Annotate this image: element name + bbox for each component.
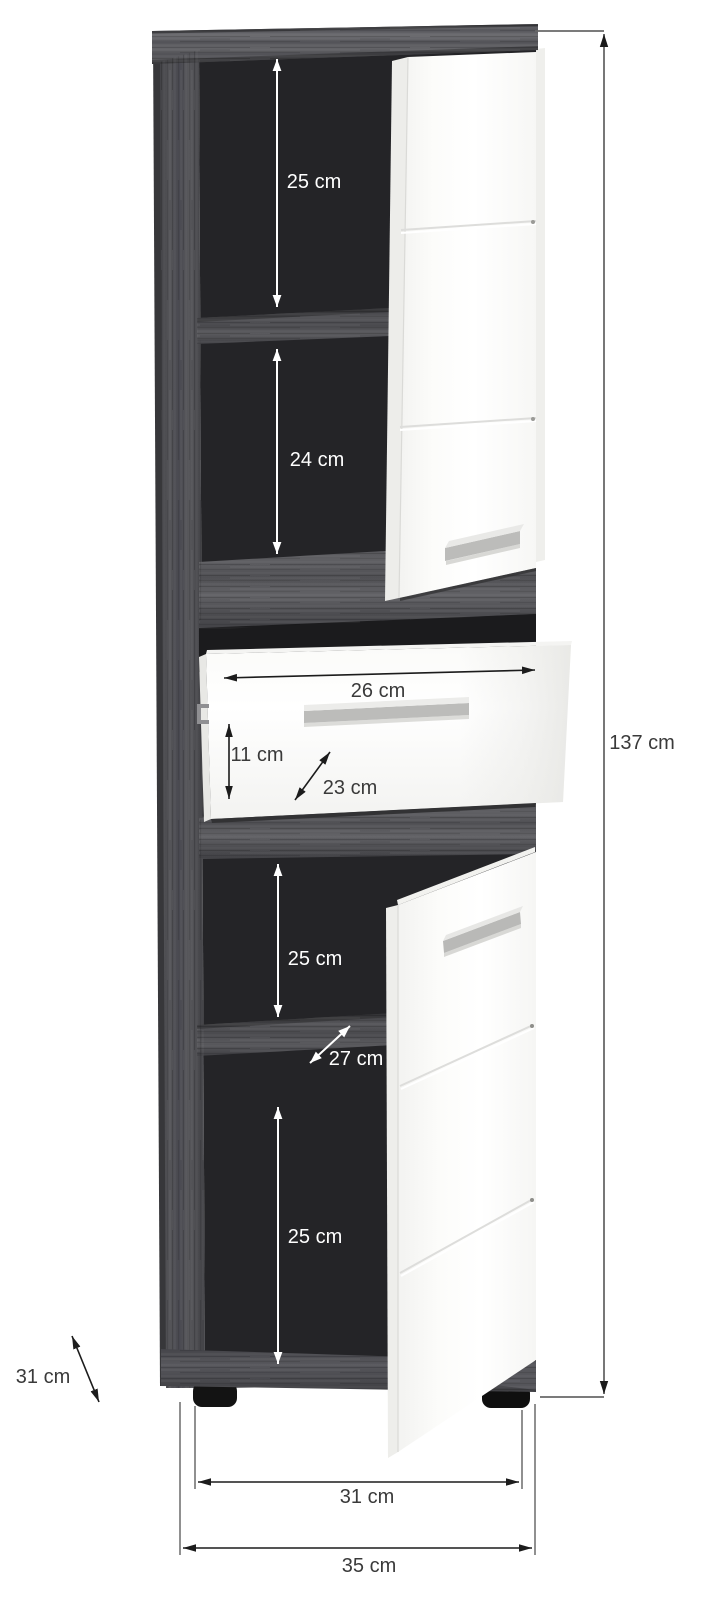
svg-text:23 cm: 23 cm	[323, 777, 377, 799]
svg-text:26 cm: 26 cm	[351, 680, 405, 702]
svg-text:31 cm: 31 cm	[340, 1486, 394, 1508]
svg-text:137 cm: 137 cm	[609, 732, 675, 754]
svg-text:11 cm: 11 cm	[231, 744, 284, 766]
svg-text:25 cm: 25 cm	[288, 948, 342, 970]
svg-text:24 cm: 24 cm	[290, 449, 344, 471]
svg-text:25 cm: 25 cm	[287, 171, 341, 193]
svg-text:35 cm: 35 cm	[342, 1555, 396, 1577]
svg-text:27 cm: 27 cm	[329, 1048, 383, 1070]
svg-text:25 cm: 25 cm	[288, 1226, 342, 1248]
svg-text:31 cm: 31 cm	[16, 1366, 70, 1388]
